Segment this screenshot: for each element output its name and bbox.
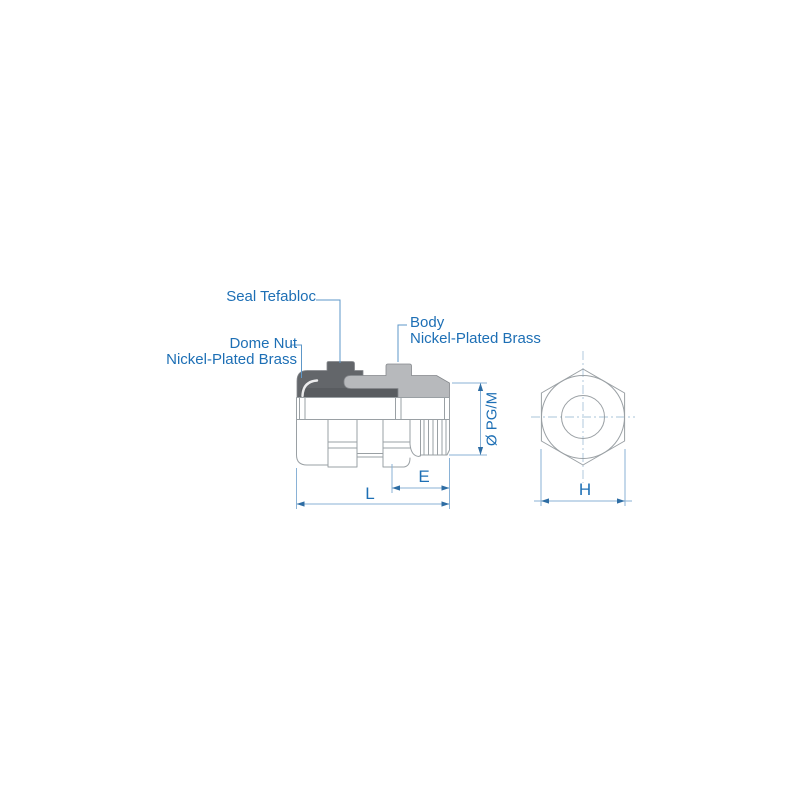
arrowhead-down: [478, 447, 483, 455]
hex-lug-2: [383, 420, 410, 468]
arrowhead-left: [392, 485, 400, 490]
dome-nut-label-line1: Dome Nut: [166, 336, 297, 352]
dome-nut-label-line2: Nickel-Plated Brass: [166, 352, 297, 368]
diameter-dim-label: Ø PG/M: [484, 392, 501, 446]
dome-skirt: [297, 420, 329, 466]
thread-length-dim-label: E: [418, 467, 429, 487]
arrowhead-left: [541, 498, 549, 503]
arrowhead-right: [617, 498, 625, 503]
across-flats-dim-label: H: [579, 480, 591, 500]
body-label-line2: Nickel-Plated Brass: [410, 331, 541, 347]
end-view: [531, 351, 635, 483]
cable-gland-diagram: [0, 0, 800, 800]
arrowhead-left: [297, 501, 305, 506]
side-view-outline: [297, 398, 450, 468]
body-label-line1: Body: [410, 315, 541, 331]
dimension-diameter: [449, 383, 487, 455]
overall-length-dim-label: L: [365, 484, 374, 504]
across-flats-lines: [357, 454, 383, 458]
hex-lug-1: [328, 420, 357, 468]
seal-shape: [301, 388, 398, 398]
leader-line-seal: [316, 300, 340, 363]
seal-label: Seal Tefabloc: [226, 289, 316, 305]
thread-section: [421, 420, 450, 457]
dome-nut-label: Dome Nut Nickel-Plated Brass: [166, 336, 297, 368]
arrowhead-right: [442, 501, 450, 506]
technical-drawing-page: Seal Tefabloc Dome Nut Nickel-Plated Bra…: [0, 0, 800, 800]
arrowhead-right: [442, 485, 450, 490]
leader-line-body: [398, 325, 407, 362]
arrowhead-up: [478, 383, 483, 391]
neck-curve: [410, 444, 421, 457]
body-label: Body Nickel-Plated Brass: [410, 315, 541, 347]
side-view: [297, 362, 450, 468]
upper-band: [297, 398, 450, 420]
extension-lines-diameter: [449, 383, 487, 455]
